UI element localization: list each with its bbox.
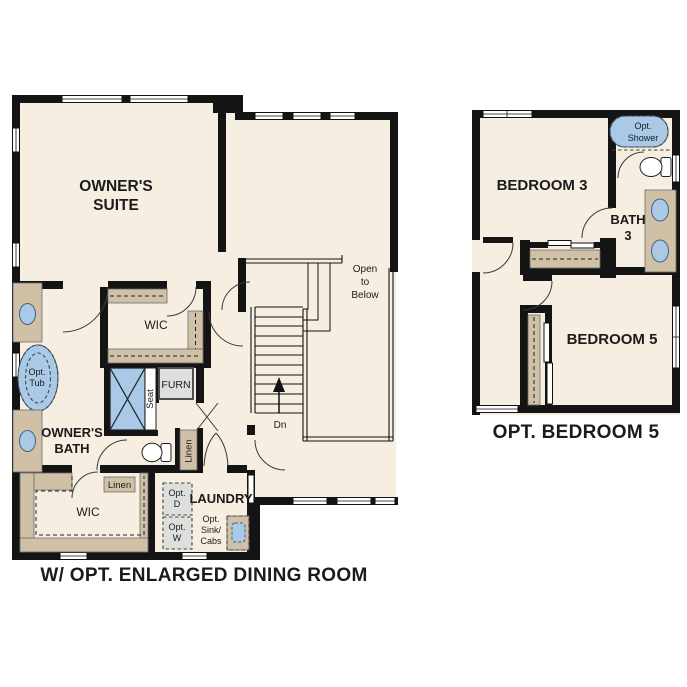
window (673, 306, 680, 368)
closet-door-panel (548, 241, 571, 246)
main-floor-plan: OWNER'S SUITE WIC Open to Below Opt. Tub… (12, 95, 398, 586)
opt-dryer-label: D (174, 499, 181, 509)
open-to-below-label: Open (353, 264, 377, 275)
toilet (142, 443, 171, 461)
closet-door-panel (571, 243, 594, 248)
open-to-below-label: Below (351, 290, 379, 301)
seat-label: Seat (145, 389, 156, 409)
opt-shower-label: Shower (628, 133, 659, 143)
window (337, 498, 371, 505)
window (673, 155, 680, 182)
window (130, 96, 188, 103)
opt-dryer-label: Opt. (168, 488, 185, 498)
window (483, 111, 532, 118)
wic-lower-label: WIC (76, 505, 100, 519)
stair-direction-label: Dn (274, 420, 287, 431)
floor-plan-page: OWNER'S SUITE WIC Open to Below Opt. Tub… (0, 0, 687, 687)
window (182, 553, 207, 560)
linen-closet-label: Linen (184, 439, 195, 462)
laundry-label: LAUNDRY (189, 491, 252, 506)
toilet (640, 158, 671, 177)
opt-washer-label: W (173, 533, 182, 543)
bedroom5-label: BEDROOM 5 (567, 331, 658, 348)
window (60, 553, 87, 560)
opt-sink-cabs-label: Cabs (200, 536, 222, 546)
window (330, 113, 355, 120)
opt-washer-label: Opt. (168, 522, 185, 532)
owners-suite-label: SUITE (93, 197, 139, 214)
sink-basin (20, 304, 36, 325)
owners-bath-label: OWNER'S (41, 425, 103, 440)
bedroom3-label: BEDROOM 3 (497, 177, 588, 194)
closet-door-panel (547, 363, 553, 404)
window (255, 113, 283, 120)
opt-tub-label: Opt. (28, 367, 45, 377)
window (13, 243, 20, 267)
owners-suite-label: OWNER'S (79, 178, 152, 195)
window (293, 113, 321, 120)
bath3-label: 3 (624, 228, 631, 243)
wic-upper-label: WIC (144, 318, 168, 332)
window (13, 128, 20, 152)
main-plan-caption: W/ OPT. ENLARGED DINING ROOM (40, 565, 367, 586)
owners-bath-label: BATH (54, 441, 89, 456)
bedroom3-closet-shelf (530, 250, 600, 268)
closet-door-panel (544, 323, 550, 362)
optional-floor-plan: BEDROOM 3 Opt. Shower BATH 3 BEDROOM 5 O… (472, 110, 680, 443)
optional-sink-cabinet (227, 516, 249, 550)
window (293, 498, 327, 505)
furnace-label: FURN (161, 379, 190, 391)
opt-sink-cabs-label: Sink/ (201, 525, 222, 535)
opt-sink-cabs-label: Opt. (202, 514, 219, 524)
opt-tub-label: Tub (29, 378, 44, 388)
laundry-sink (232, 523, 245, 542)
opt-shower-label: Opt. (634, 121, 651, 131)
floor-plan-canvas: OWNER'S SUITE WIC Open to Below Opt. Tub… (0, 0, 687, 687)
sink-basin (652, 199, 669, 221)
sink-basin (20, 431, 36, 452)
sink-basin (652, 240, 669, 262)
window (476, 406, 518, 413)
bath3-label: BATH (610, 212, 645, 227)
window (62, 96, 122, 103)
optional-plan-caption: OPT. BEDROOM 5 (493, 422, 660, 443)
linen-cabinet-label: Linen (108, 480, 131, 491)
window (375, 498, 395, 505)
open-to-below-label: to (361, 277, 370, 288)
bedroom5-closet-shelf (528, 315, 540, 405)
